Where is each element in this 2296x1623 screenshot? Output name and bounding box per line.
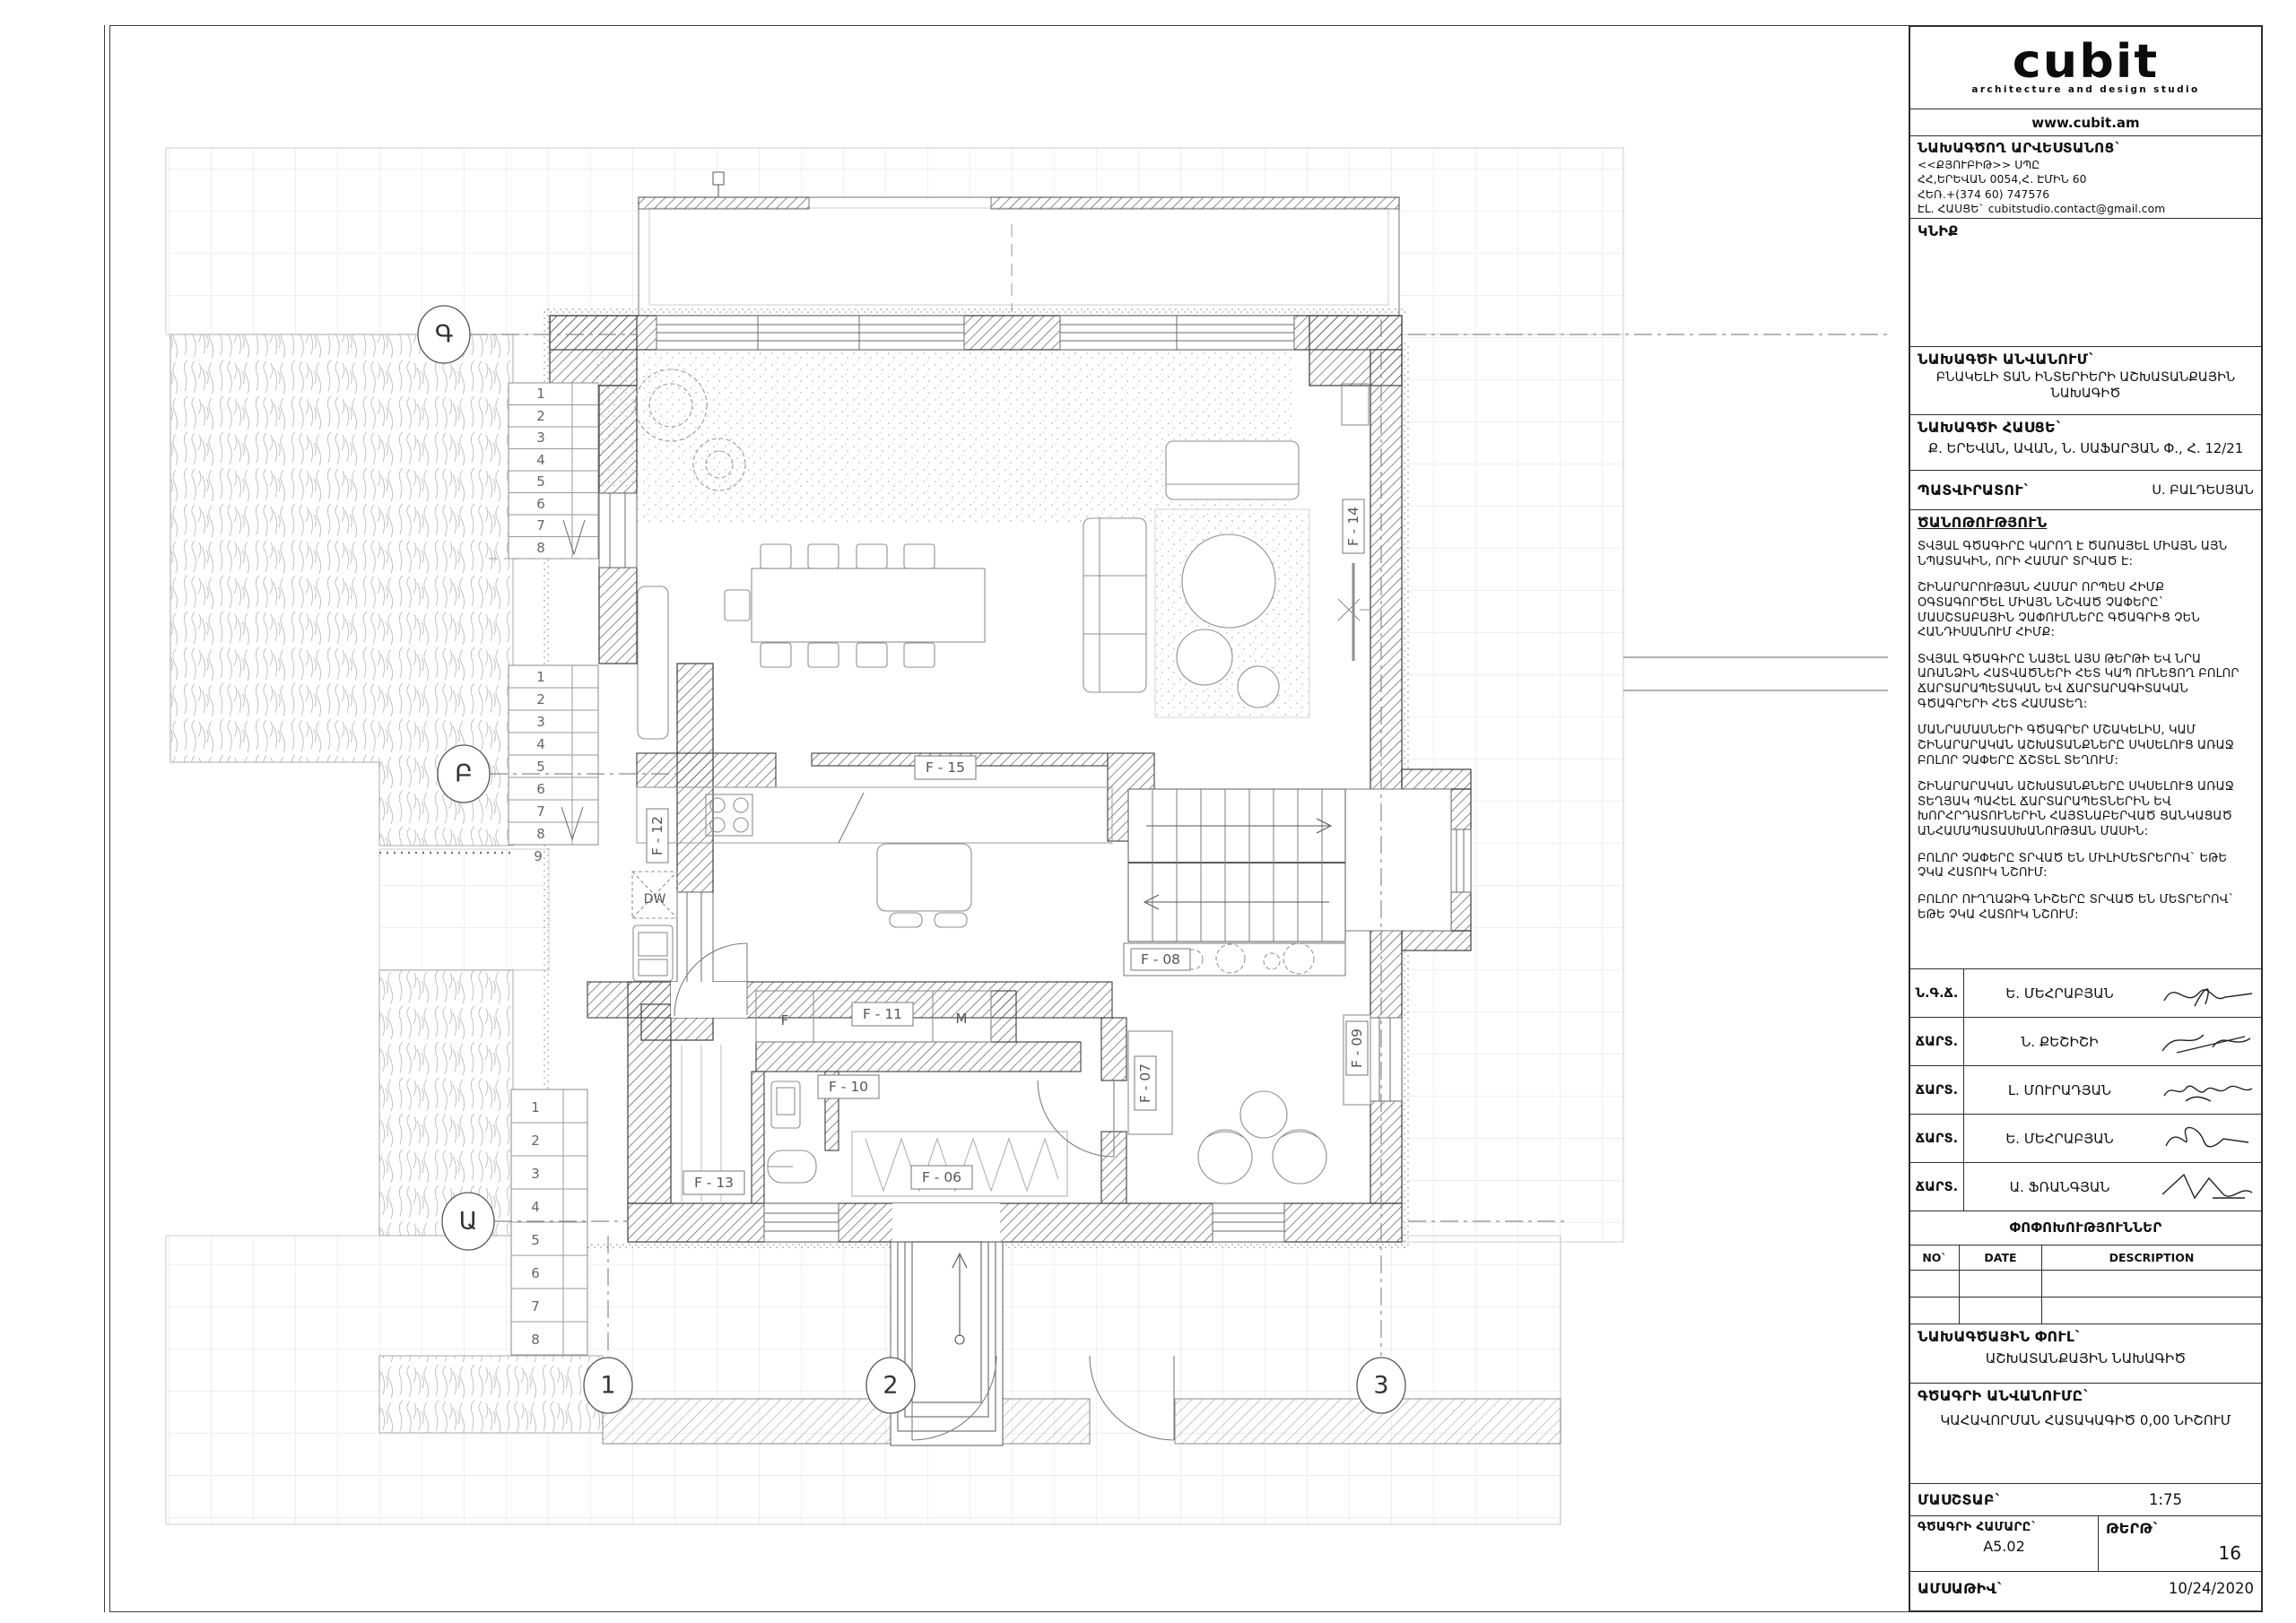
project-name-value: ԲՆԱԿԵԼԻ ՏԱՆ ԻՆՏԵՐԻԵՐԻ ԱՇԽԱՏԱՆՔԱՅԻՆ ՆԱԽԱԳ…	[1918, 370, 2254, 403]
signature-row: ՃԱՐՏ. Ա. ՖՌԱՆԳՅԱՆ	[1910, 1163, 2261, 1211]
phase-value: ԱՇԽԱՏԱՆՔԱՅԻՆ ՆԱԽԱԳԻԾ	[1918, 1350, 2254, 1367]
label-f07: F - 07	[1135, 1056, 1156, 1110]
svg-text:F - 15: F - 15	[926, 759, 965, 776]
studio-logo: cubit architecture and design studio	[1910, 27, 2261, 109]
signature-role: ՃԱՐՏ.	[1910, 1066, 1964, 1114]
changes-heading-box: ՓՈՓՈԽՈՒԹՅՈՒՆՆԵՐ	[1910, 1211, 2261, 1245]
studio-website: www.cubit.am	[1910, 109, 2261, 136]
signature-name: Լ. ՄՈՒՐԱԴՅԱՆ	[1964, 1082, 2155, 1098]
sofa-side	[1083, 518, 1146, 692]
svg-text:4: 4	[536, 736, 545, 752]
changes-cell	[2042, 1298, 2261, 1324]
label-f15: F - 15	[915, 756, 976, 779]
svg-text:2: 2	[531, 1133, 540, 1149]
signature-scribble	[2159, 1071, 2261, 1110]
bench	[638, 586, 668, 739]
signature-row: Ն.Գ.Ճ. Ե. ՄԵՀՐԱԲՅԱՆ	[1910, 969, 2261, 1018]
grid-bubble-row-g: Գ	[418, 306, 470, 363]
changes-cell	[1960, 1271, 2042, 1298]
changes-cell	[2042, 1271, 2261, 1298]
notes-box: ԾԱՆՈԹՈՒԹՅՈՒՆ ՏՎՅԱԼ ԳԾԱԳԻՐԸ ԿԱՐՈՂ Է ԾԱՌԱՅ…	[1910, 510, 2261, 969]
seal-label: ԿՆԻՔ	[1918, 222, 2254, 239]
website-link[interactable]: www.cubit.am	[2031, 115, 2139, 131]
signature-row: ՃԱՐՏ. Ե. ՄԵՀՐԱԲՅԱՆ	[1910, 1115, 2261, 1163]
svg-text:1: 1	[536, 386, 545, 402]
svg-text:F - 14: F - 14	[1345, 507, 1361, 546]
note-item: ՏՎՅԱԼ ԳԾԱԳԻՐԸ ԿԱՐՈՂ Է ԾԱՌԱՅԵԼ ՄԻԱՅՆ ԱՅՆ …	[1918, 540, 2254, 569]
grid-bubble-col-1: 1	[584, 1358, 632, 1413]
svg-text:7: 7	[536, 803, 545, 820]
svg-text:3: 3	[1373, 1372, 1388, 1400]
svg-text:F - 09: F - 09	[1349, 1028, 1365, 1068]
changes-table-header: NO` DATE DESCRIPTION	[1910, 1245, 2261, 1271]
grid-bubble-col-2: 2	[866, 1358, 915, 1413]
sofa-top	[1166, 441, 1299, 499]
studio-email: ԷԼ. ՀԱՍՑԵ` cubitstudio.contact@gmail.com	[1918, 203, 2254, 215]
drawing-number-value: A5.02	[1918, 1538, 2091, 1555]
changes-col-no: NO`	[1910, 1245, 1960, 1271]
svg-text:3: 3	[536, 430, 545, 446]
sheet-number-box: ԹԵՐԹ` 16	[2099, 1516, 2261, 1571]
south-window-1	[764, 1203, 839, 1242]
label-f06: F - 06	[911, 1166, 972, 1189]
svg-text:3: 3	[536, 714, 545, 730]
drawing-title-box: ԳԾԱԳՐԻ ԱՆՎԱՆՈՒՄԸ` ԿԱՀԱՎՈՐՄԱՆ ՀԱՏԱԿԱԳԻԾ 0…	[1910, 1384, 2261, 1484]
label-f10: F - 10	[818, 1075, 879, 1098]
studio-address: ՀՀ,ԵՐԵՎԱՆ 0054,Հ. ԷՄԻՆ 60	[1918, 173, 2254, 186]
svg-text:5: 5	[531, 1232, 540, 1248]
date-label: ԱՄՍԱԹԻՎ`	[1918, 1580, 2004, 1597]
grid-bubble-row-b: Բ	[438, 745, 490, 803]
signature-scribble	[2159, 974, 2261, 1013]
grid-bubble-row-a: Ա	[442, 1193, 494, 1250]
svg-text:Գ: Գ	[435, 321, 453, 349]
project-name-box: ՆԱԽԱԳԾԻ ԱՆՎԱՆՈՒՄ` ԲՆԱԿԵԼԻ ՏԱՆ ԻՆՏԵՐԻԵՐԻ …	[1910, 347, 2261, 415]
signature-role: Ն.Գ.Ճ.	[1910, 969, 1964, 1017]
label-f13: F - 13	[683, 1171, 744, 1194]
exterior-stair-lower	[511, 1089, 587, 1355]
east-window	[1370, 1018, 1402, 1101]
project-name-label: ՆԱԽԱԳԾԻ ԱՆՎԱՆՈՒՄ`	[1918, 351, 2254, 368]
changes-col-date: DATE	[1960, 1245, 2042, 1271]
street-walkway-lines	[1623, 657, 1888, 690]
signature-role: ՃԱՐՏ.	[1910, 1163, 1964, 1211]
phase-label: ՆԱԽԱԳԾԱՅԻՆ ՓՈՒԼ`	[1918, 1328, 2254, 1345]
svg-text:2: 2	[536, 691, 545, 707]
scale-label: ՄԱՍՇՏԱԲ`	[1918, 1491, 2002, 1508]
svg-text:F - 08: F - 08	[1141, 951, 1180, 968]
f13-door-opening	[671, 982, 747, 1018]
changes-table-row	[1910, 1298, 2261, 1324]
sheet-value: 16	[2106, 1542, 2254, 1564]
sheet-label: ԹԵՐԹ`	[2106, 1520, 2254, 1537]
svg-text:9: 9	[534, 848, 543, 864]
title-block: cubit architecture and design studio www…	[1909, 25, 2263, 1612]
seal-box: ԿՆԻՔ	[1910, 219, 2261, 347]
drawing-number-label: ԳԾԱԳՐԻ ՀԱՄԱՐԸ`	[1918, 1520, 2091, 1534]
svg-text:Ա: Ա	[459, 1208, 478, 1236]
coffee-table-small	[1238, 666, 1279, 707]
svg-text:F - 06: F - 06	[922, 1169, 961, 1185]
project-address-box: ՆԱԽԱԳԾԻ ՀԱՍՑԵ` Ք. ԵՐԵՎԱՆ, ԱՎԱՆ, Ն. ՍԱՖԱՐ…	[1910, 415, 2261, 471]
mark-washer: F	[781, 1012, 789, 1028]
coffee-table-large	[1182, 534, 1275, 628]
studio-company: <<ՔՅՈՒԲԻԹ>> ՍՊԸ	[1918, 159, 2254, 171]
signature-row: ՃԱՐՏ. Ն. ՔԵՇԻՇԻ	[1910, 1018, 2261, 1066]
studio-phone: ՀԵՌ.+(374 60) 747576	[1918, 188, 2254, 201]
number-sheet-row: ԳԾԱԳՐԻ ՀԱՄԱՐԸ` A5.02 ԹԵՐԹ` 16	[1910, 1516, 2261, 1572]
signature-name: Ե. ՄԵՀՐԱԲՅԱՆ	[1964, 1131, 2155, 1147]
notes-heading: ԾԱՆՈԹՈՒԹՅՈՒՆ	[1918, 514, 2254, 531]
svg-text:8: 8	[536, 540, 545, 556]
sidewalk-bands	[603, 1399, 1561, 1444]
sheet-border-outer	[104, 25, 105, 1612]
svg-text:6: 6	[536, 781, 545, 797]
svg-text:1: 1	[536, 669, 545, 685]
note-item: ՄԱՆՐԱՄԱՍՆԵՐԻ ԳԾԱԳՐԵՐ ՄՇԱԿԵԼԻՍ, ԿԱՄ ՇԻՆԱՐ…	[1918, 724, 2254, 768]
note-item: ԲՈԼՈՐ ՈՒՂՂԱՁԻԳ ՆԻՇԵՐԸ ՏՐՎԱԾ ԵՆ ՄԵՏՐԵՐՈՎ`…	[1918, 893, 2254, 923]
changes-cell	[1960, 1298, 2042, 1324]
changes-cell	[1910, 1298, 1960, 1324]
svg-text:6: 6	[531, 1265, 540, 1281]
grid-bubble-col-3: 3	[1357, 1358, 1405, 1413]
drawing-title-value: ԿԱՀԱՎՈՐՄԱՆ ՀԱՏԱԿԱԳԻԾ 0,00 ՆԻՇՈՒՄ	[1938, 1411, 2234, 1430]
south-window-2	[1213, 1203, 1284, 1242]
client-label: ՊԱՏՎԻՐԱՏՈՒ`	[1918, 482, 2031, 499]
svg-text:8: 8	[531, 1332, 540, 1348]
svg-text:5: 5	[536, 759, 545, 775]
project-address-label: ՆԱԽԱԳԾԻ ՀԱՍՑԵ`	[1918, 419, 2254, 436]
kitchen-island	[877, 844, 971, 911]
svg-text:1: 1	[531, 1099, 540, 1115]
note-item: ՇԻՆԱՐԱՐՈՒԹՅԱՆ ՀԱՄԱՐ ՈՐՊԵՍ ՀԻՄՔ ՕԳՏԱԳՈՐԾԵ…	[1918, 581, 2254, 641]
label-f08: F - 08	[1131, 949, 1190, 970]
svg-text:F - 10: F - 10	[829, 1079, 868, 1095]
changes-heading: ՓՈՓՈԽՈՒԹՅՈՒՆՆԵՐ	[2010, 1219, 2162, 1236]
main-staircase	[1128, 789, 1451, 942]
signature-role: ՃԱՐՏ.	[1910, 1018, 1964, 1065]
exterior-stair-middle	[509, 665, 598, 845]
label-f09: F - 09	[1346, 1021, 1368, 1075]
svg-text:F - 13: F - 13	[694, 1175, 734, 1191]
phase-box: ՆԱԽԱԳԾԱՅԻՆ ՓՈՒԼ` ԱՇԽԱՏԱՆՔԱՅԻՆ ՆԱԽԱԳԻԾ	[1910, 1324, 2261, 1384]
date-value: 10/24/2020	[2169, 1580, 2254, 1597]
svg-text:6: 6	[536, 496, 545, 512]
client-box: ՊԱՏՎԻՐԱՏՈՒ` Ս. ԲԱԼԴԵՍՅԱՆ	[1910, 471, 2261, 510]
svg-text:Բ: Բ	[455, 760, 473, 788]
drawing-title-label: ԳԾԱԳՐԻ ԱՆՎԱՆՈՒՄԸ`	[1918, 1387, 2254, 1404]
scale-box: ՄԱՍՇՏԱԲ` 1:75	[1910, 1484, 2261, 1516]
drawing-number-box: ԳԾԱԳՐԻ ՀԱՄԱՐԸ` A5.02	[1910, 1516, 2099, 1571]
stair-bay-window	[1451, 829, 1471, 892]
entry-opening	[892, 1203, 1000, 1242]
studio-heading: ՆԱԽԱԳԾՈՂ ԱՐՎԵՍՏԱՆՈՑ`	[1918, 140, 2254, 156]
signature-name: Ե. ՄԵՀՐԱԲՅԱՆ	[1964, 985, 2155, 1002]
svg-text:4: 4	[536, 452, 545, 468]
signature-name: Ա. ՖՌԱՆԳՅԱՆ	[1964, 1179, 2155, 1195]
svg-text:7: 7	[531, 1298, 540, 1315]
scale-value: 1:75	[2149, 1491, 2182, 1508]
note-item: ԲՈԼՈՐ ՉԱՓԵՐԸ ՏՐՎԱԾ ԵՆ ՄԻԼԻՄԵՏՐԵՐՈՎ` ԵԹԵ …	[1918, 852, 2254, 881]
changes-col-description: DESCRIPTION	[2042, 1245, 2261, 1271]
north-window-2	[1060, 316, 1294, 350]
logo-brand-text: cubit	[2013, 41, 2159, 82]
studio-info: ՆԱԽԱԳԾՈՂ ԱՐՎԵՍՏԱՆՈՑ` <<ՔՅՈՒԲԻԹ>> ՍՊԸ ՀՀ,…	[1910, 136, 2261, 219]
changes-cell	[1910, 1271, 1960, 1298]
signature-scribble	[2159, 1167, 2261, 1207]
coffee-table-mid	[1177, 629, 1232, 685]
svg-text:F - 11: F - 11	[863, 1006, 902, 1022]
svg-text:1: 1	[600, 1372, 615, 1400]
north-window-1	[657, 316, 964, 350]
mark-dryer: M	[956, 1011, 968, 1027]
label-f14: F - 14	[1343, 499, 1364, 553]
svg-text:F - 12: F - 12	[649, 816, 665, 855]
svg-text:4: 4	[531, 1199, 540, 1215]
svg-text:3: 3	[531, 1166, 540, 1182]
label-f12: F - 12	[647, 809, 668, 863]
changes-table-row	[1910, 1271, 2261, 1298]
note-item: ՏՎՅԱԼ ԳԾԱԳԻՐԸ ՆԱՅԵԼ ԱՅՍ ԹԵՐԹԻ ԵՎ ՆՐԱ ԱՌԱ…	[1918, 653, 2254, 713]
mark-dw: DW	[644, 892, 666, 907]
signature-role: ՃԱՐՏ.	[1910, 1115, 1964, 1162]
signature-name: Ն. ՔԵՇԻՇԻ	[1964, 1034, 2155, 1050]
svg-text:5: 5	[536, 473, 545, 490]
entry-portico	[891, 1242, 1003, 1445]
signature-row: ՃԱՐՏ. Լ. ՄՈՒՐԱԴՅԱՆ	[1910, 1066, 2261, 1115]
svg-text:7: 7	[536, 517, 545, 534]
label-f11: F - 11	[852, 1002, 913, 1026]
signature-scribble	[2159, 1119, 2261, 1159]
note-item: ՇԻՆԱՐԱՐԱԿԱՆ ԱՇԽԱՏԱՆՔՆԵՐԸ ՍԿՍԵԼՈՒՑ ԱՌԱՋ Տ…	[1918, 780, 2254, 840]
west-door	[599, 493, 637, 568]
signature-scribble	[2159, 1022, 2261, 1062]
client-value: Ս. ԲԱԼԴԵՍՅԱՆ	[2152, 483, 2254, 498]
drawing-sheet: F - 15 F - 12 F - 11 F - 10 F - 13 F - 0…	[0, 0, 2296, 1623]
svg-text:2: 2	[883, 1372, 898, 1400]
svg-text:F - 07: F - 07	[1137, 1063, 1153, 1103]
date-box: ԱՄՍԱԹԻՎ` 10/24/2020	[1910, 1572, 2261, 1605]
svg-text:2: 2	[536, 408, 545, 424]
project-address-value: Ք. ԵՐԵՎԱՆ, ԱՎԱՆ, Ն. ՍԱՖԱՐՅԱՆ Փ., Հ. 12/2…	[1918, 441, 2254, 456]
svg-text:8: 8	[536, 826, 545, 842]
